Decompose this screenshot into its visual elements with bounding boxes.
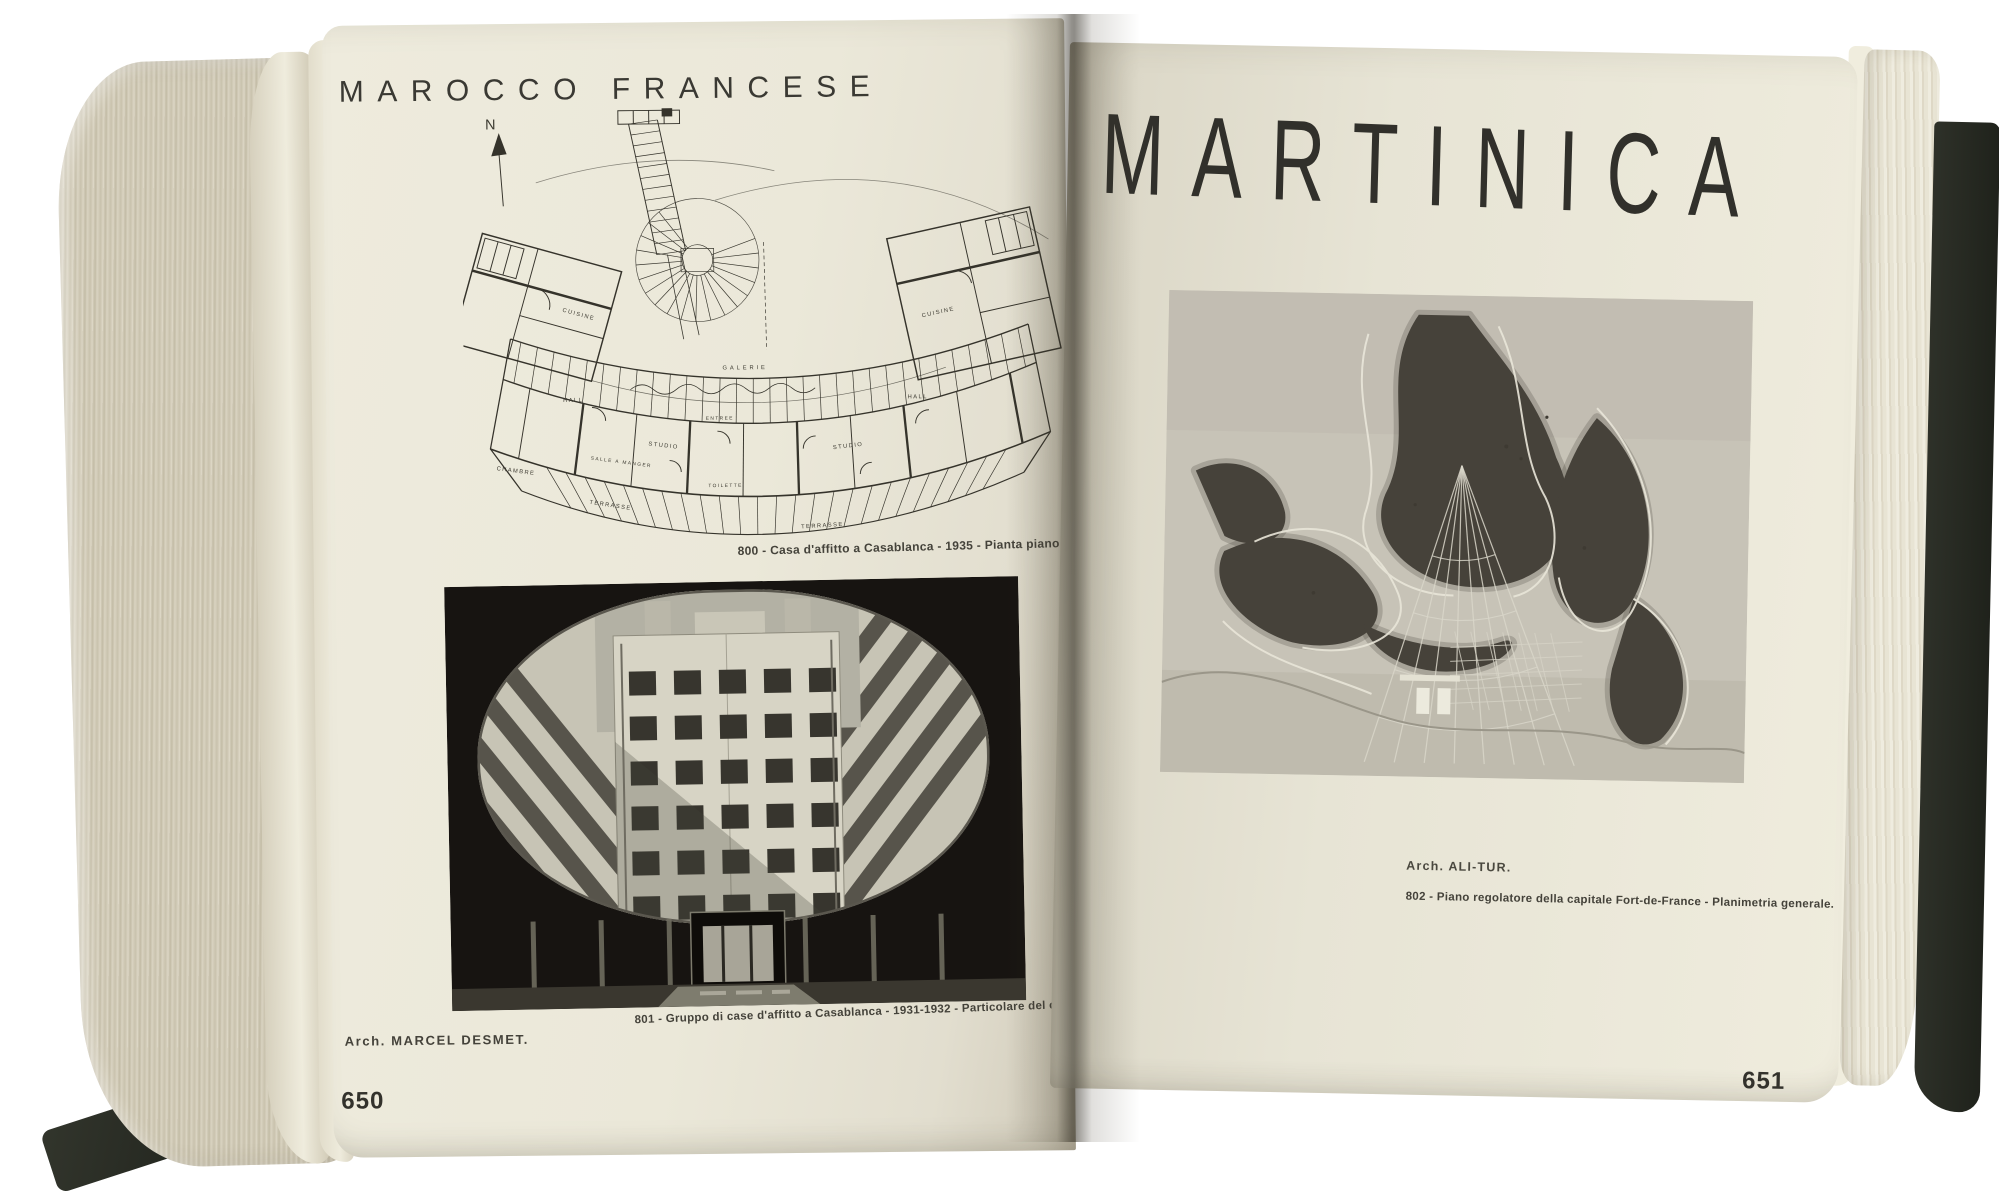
fort-de-france-plan — [1160, 290, 1753, 783]
courtyard-facade — [613, 632, 845, 936]
courtyard-photo — [444, 576, 1026, 1011]
architect-credit-right: Arch. ALI-TUR. — [1406, 859, 1511, 875]
plan-label-salle-a-manger: SALLE A MANGER — [590, 456, 652, 470]
plan-label-terrasse-2: TERRASSE — [801, 522, 844, 531]
plan-label-n: N — [485, 117, 496, 133]
plan-label-entree: ENTREE — [706, 415, 734, 421]
book-photograph: MAROCCO FRANCESE — [0, 0, 1999, 1199]
spiral-stair — [635, 198, 759, 322]
floor-plan-figure: N GALERIE STUDIO STUDIO HALL HALL CUISIN… — [461, 104, 1078, 572]
plan-label-studio-1: STUDIO — [648, 441, 679, 450]
left-page-title: MAROCCO FRANCESE — [339, 70, 884, 110]
page-number-right: 651 — [1742, 1067, 1786, 1096]
plan-label-toilette: TOILETTE — [708, 483, 742, 489]
right-page-title: MARTINICA — [1100, 87, 1770, 245]
architect-credit-left: Arch. MARCEL DESMET. — [345, 1032, 529, 1049]
right-page: MARTINICA — [1050, 42, 1858, 1103]
plan-label-studio-2: STUDIO — [833, 442, 864, 451]
plan-label-galerie: GALERIE — [723, 365, 768, 371]
plan-label-hall-2: HALL — [908, 394, 928, 400]
north-arrow-icon — [491, 133, 507, 206]
figure-caption-802: 802 - Piano regolatore della capitale Fo… — [1406, 891, 1835, 911]
courtyard-photo-figure — [444, 576, 1026, 1011]
left-page: MAROCCO FRANCESE — [322, 18, 1076, 1158]
floor-plan-drawing: N GALERIE STUDIO STUDIO HALL HALL CUISIN… — [461, 104, 1078, 572]
plan-label-cuisine-1: CUISINE — [562, 308, 596, 323]
page-number-left: 650 — [341, 1087, 384, 1115]
plan-label-hall-1: HALL — [563, 398, 583, 404]
map-figure — [1160, 290, 1753, 783]
plan-label-terrasse-1: TERRASSE — [589, 500, 632, 512]
plan-label-chambre: CHAMBRE — [496, 466, 535, 477]
plan-label-cuisine-2: CUISINE — [921, 306, 955, 319]
